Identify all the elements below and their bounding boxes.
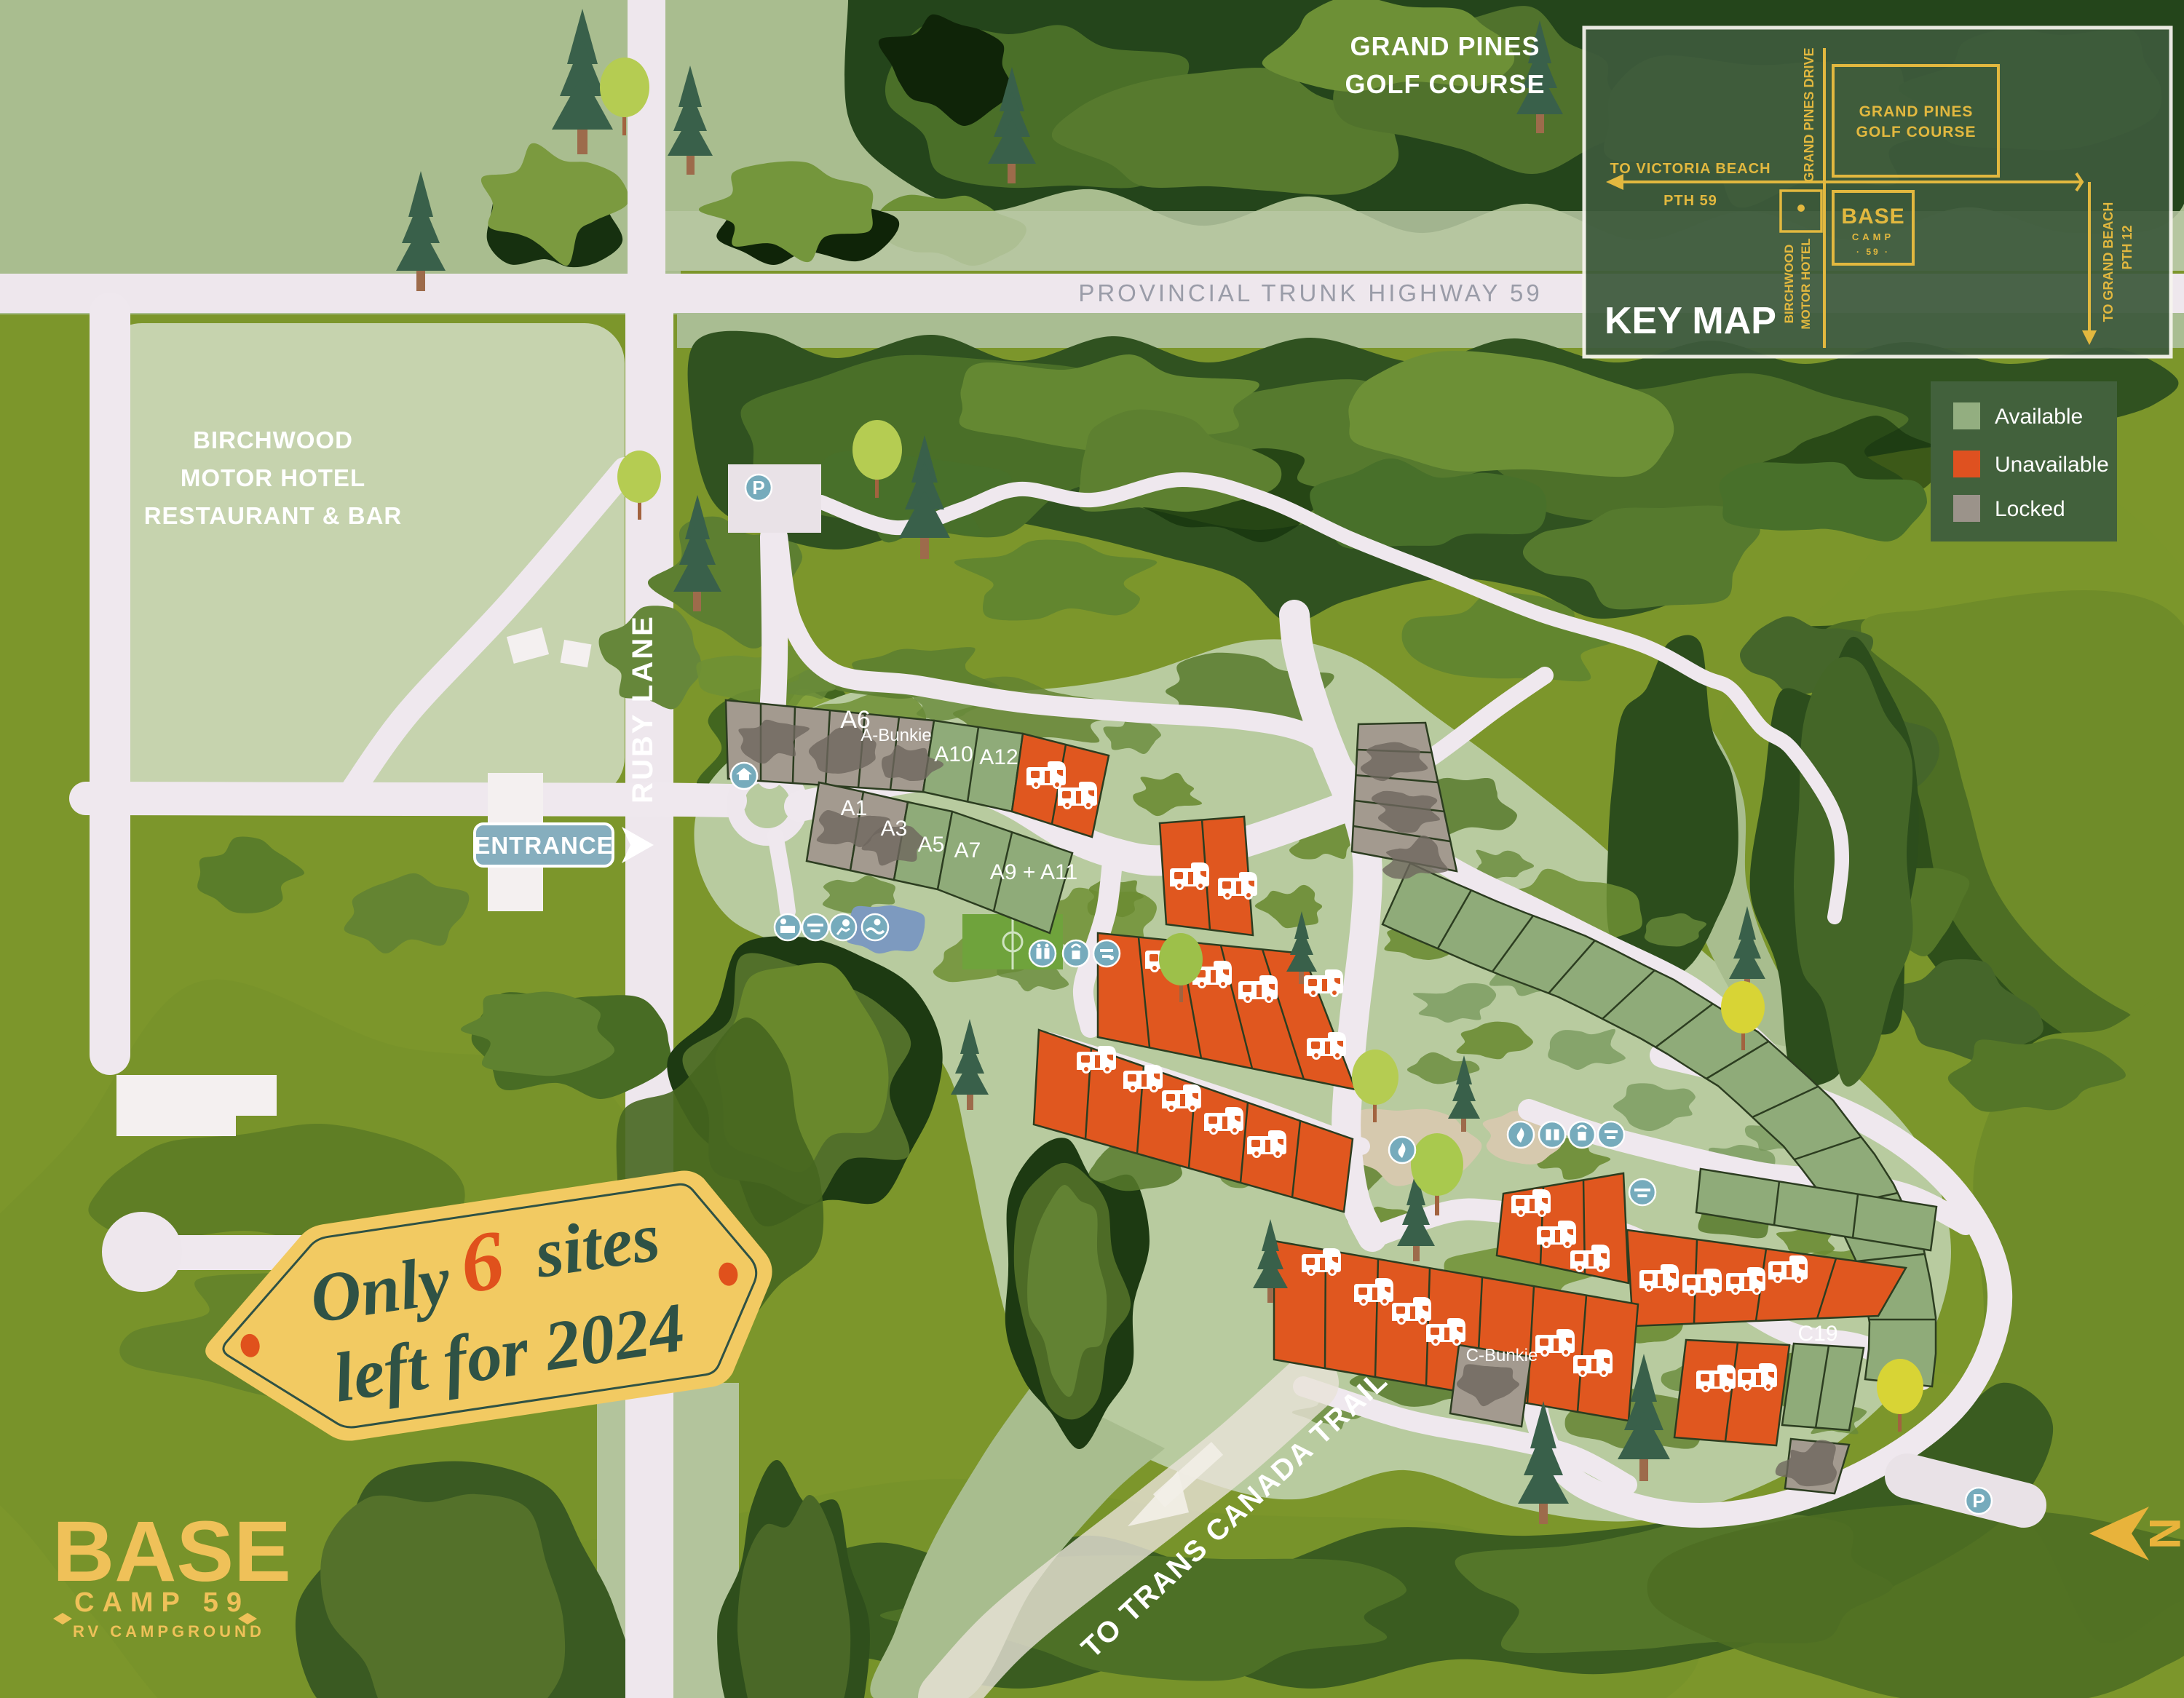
svg-text:A12: A12 (979, 745, 1018, 769)
svg-text:ENTRANCE: ENTRANCE (474, 832, 613, 859)
svg-text:C-Bunkie: C-Bunkie (1466, 1346, 1538, 1365)
svg-text:A5: A5 (918, 833, 945, 857)
svg-text:Available: Available (1995, 405, 2083, 429)
svg-text:· 59 ·: · 59 · (1856, 247, 1890, 257)
svg-text:PROVINCIAL TRUNK HIGHWAY 59: PROVINCIAL TRUNK HIGHWAY 59 (1078, 279, 1542, 306)
svg-text:N: N (2140, 1518, 2184, 1549)
svg-text:GRAND PINES: GRAND PINES (1350, 31, 1540, 61)
svg-text:BIRCHWOOD: BIRCHWOOD (193, 427, 353, 453)
svg-text:A10: A10 (934, 742, 973, 766)
svg-text:GRAND PINES: GRAND PINES (1859, 103, 1974, 120)
svg-text:BIRCHWOOD: BIRCHWOOD (1782, 245, 1796, 324)
svg-text:C19: C19 (1797, 1322, 1837, 1346)
svg-text:PTH 12: PTH 12 (2120, 225, 2134, 269)
svg-text:Locked: Locked (1995, 497, 2065, 521)
svg-text:TO VICTORIA BEACH: TO VICTORIA BEACH (1610, 161, 1770, 177)
svg-text:BASE: BASE (52, 1504, 291, 1600)
svg-text:GOLF COURSE: GOLF COURSE (1345, 69, 1545, 99)
svg-text:TO GRAND BEACH: TO GRAND BEACH (2101, 202, 2116, 322)
svg-text:GRAND PINES DRIVE: GRAND PINES DRIVE (1802, 47, 1816, 182)
svg-text:GOLF COURSE: GOLF COURSE (1856, 124, 1976, 140)
svg-text:RESTAURANT & BAR: RESTAURANT & BAR (144, 502, 403, 529)
svg-text:BASE: BASE (1841, 205, 1904, 229)
svg-text:A7: A7 (954, 838, 981, 862)
svg-text:A1: A1 (841, 796, 868, 820)
svg-text:CAMP 59: CAMP 59 (74, 1587, 250, 1618)
svg-text:P: P (752, 477, 764, 499)
svg-text:RV CAMPGROUND: RV CAMPGROUND (73, 1622, 265, 1641)
svg-text:A3: A3 (881, 817, 908, 841)
svg-text:RUBY LANE: RUBY LANE (627, 614, 659, 804)
svg-text:KEY MAP: KEY MAP (1605, 300, 1776, 342)
svg-text:CAMP: CAMP (1852, 231, 1894, 242)
svg-text:Unavailable: Unavailable (1995, 453, 2109, 477)
svg-text:MOTOR HOTEL: MOTOR HOTEL (1799, 238, 1813, 329)
svg-text:MOTOR HOTEL: MOTOR HOTEL (181, 464, 365, 491)
svg-text:A9 + A11: A9 + A11 (990, 860, 1077, 884)
svg-text:P: P (1972, 1490, 1985, 1512)
svg-text:PTH 59: PTH 59 (1663, 193, 1717, 209)
svg-text:A-Bunkie: A-Bunkie (860, 726, 931, 745)
